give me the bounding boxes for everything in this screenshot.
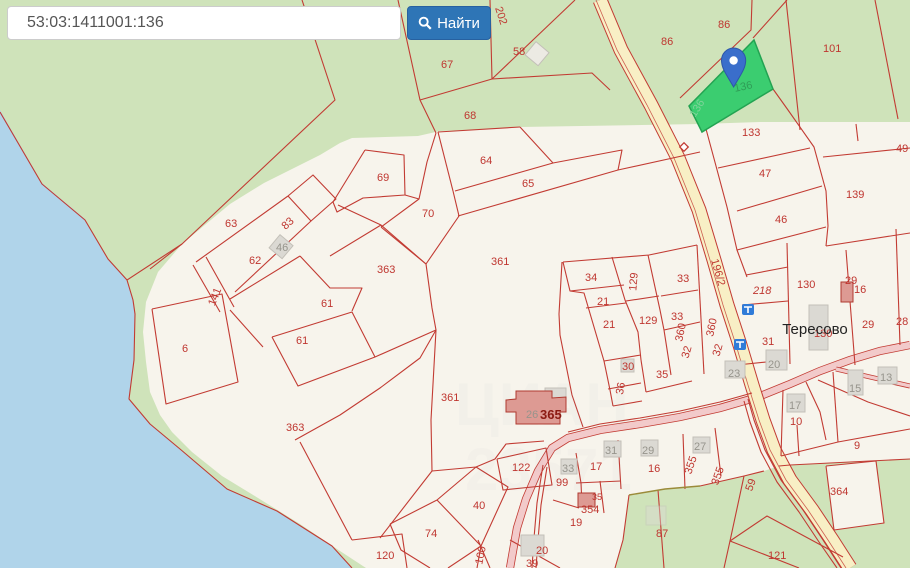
svg-text:129: 129 [627, 272, 641, 291]
svg-text:21: 21 [597, 296, 609, 308]
svg-text:29: 29 [642, 445, 654, 457]
svg-text:129: 129 [639, 315, 657, 327]
svg-text:121: 121 [768, 550, 786, 562]
svg-text:363: 363 [286, 422, 304, 434]
svg-text:33: 33 [677, 273, 689, 285]
svg-text:20: 20 [768, 359, 780, 371]
svg-text:46: 46 [276, 242, 288, 254]
svg-text:62: 62 [249, 255, 261, 267]
svg-text:17: 17 [789, 400, 801, 412]
svg-text:27: 27 [694, 441, 706, 453]
svg-text:86: 86 [718, 19, 730, 31]
svg-text:10: 10 [790, 416, 802, 428]
svg-text:31: 31 [762, 336, 774, 348]
svg-text:21: 21 [603, 319, 615, 331]
svg-text:65: 65 [522, 178, 534, 190]
svg-text:36: 36 [614, 381, 628, 395]
svg-text:47: 47 [759, 168, 771, 180]
svg-text:9: 9 [854, 440, 860, 452]
svg-text:130: 130 [797, 279, 815, 291]
svg-text:61: 61 [321, 298, 333, 310]
svg-text:19: 19 [570, 517, 582, 529]
svg-text:364: 364 [830, 486, 848, 498]
svg-text:35: 35 [592, 492, 602, 502]
svg-text:61: 61 [296, 335, 308, 347]
svg-text:58: 58 [513, 46, 525, 58]
svg-text:139: 139 [846, 189, 864, 201]
svg-text:67: 67 [441, 59, 453, 71]
svg-text:361: 361 [491, 256, 509, 268]
svg-text:15: 15 [849, 383, 861, 395]
svg-text:28: 28 [896, 316, 908, 328]
svg-text:122: 122 [512, 462, 530, 474]
svg-text:69: 69 [377, 172, 389, 184]
svg-text:35: 35 [656, 369, 668, 381]
svg-text:31: 31 [605, 445, 617, 457]
svg-text:87: 87 [656, 528, 668, 540]
svg-text:133: 133 [742, 127, 760, 139]
svg-text:99: 99 [556, 477, 568, 489]
svg-text:30: 30 [622, 361, 634, 373]
svg-text:46: 46 [775, 214, 787, 226]
svg-text:26: 26 [526, 409, 538, 421]
svg-text:20: 20 [536, 545, 548, 557]
svg-text:64: 64 [480, 155, 492, 167]
svg-text:74: 74 [425, 528, 437, 540]
svg-text:17: 17 [590, 461, 602, 473]
svg-text:33: 33 [562, 463, 574, 475]
svg-text:16: 16 [854, 284, 866, 296]
svg-text:16: 16 [648, 463, 660, 475]
svg-text:63: 63 [225, 218, 237, 230]
svg-text:68: 68 [464, 110, 476, 122]
svg-text:101: 101 [823, 43, 841, 55]
svg-text:49: 49 [896, 143, 908, 155]
svg-text:40: 40 [473, 500, 485, 512]
svg-text:23: 23 [728, 368, 740, 380]
svg-text:86: 86 [661, 36, 673, 48]
svg-text:120: 120 [376, 550, 394, 562]
svg-text:70: 70 [422, 208, 434, 220]
svg-text:34: 34 [585, 272, 597, 284]
svg-text:Тересово: Тересово [782, 321, 848, 338]
svg-text:218: 218 [752, 285, 772, 297]
svg-text:13: 13 [880, 372, 892, 384]
svg-text:33: 33 [671, 311, 683, 323]
svg-text:39: 39 [526, 558, 538, 568]
svg-text:6: 6 [182, 343, 188, 355]
svg-text:29: 29 [862, 319, 874, 331]
svg-text:354: 354 [581, 504, 599, 516]
svg-text:365: 365 [540, 407, 562, 422]
svg-text:363: 363 [377, 264, 395, 276]
svg-text:361: 361 [441, 392, 459, 404]
